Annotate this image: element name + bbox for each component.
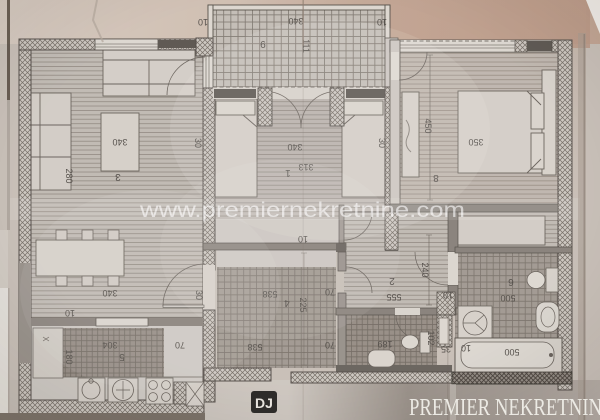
svg-text:PREMIER NEKRETNIN: PREMIER NEKRETNIN — [409, 395, 600, 420]
svg-text:www.premiernekretnine.com: www.premiernekretnine.com — [139, 199, 465, 222]
svg-text:DJ: DJ — [255, 395, 273, 411]
